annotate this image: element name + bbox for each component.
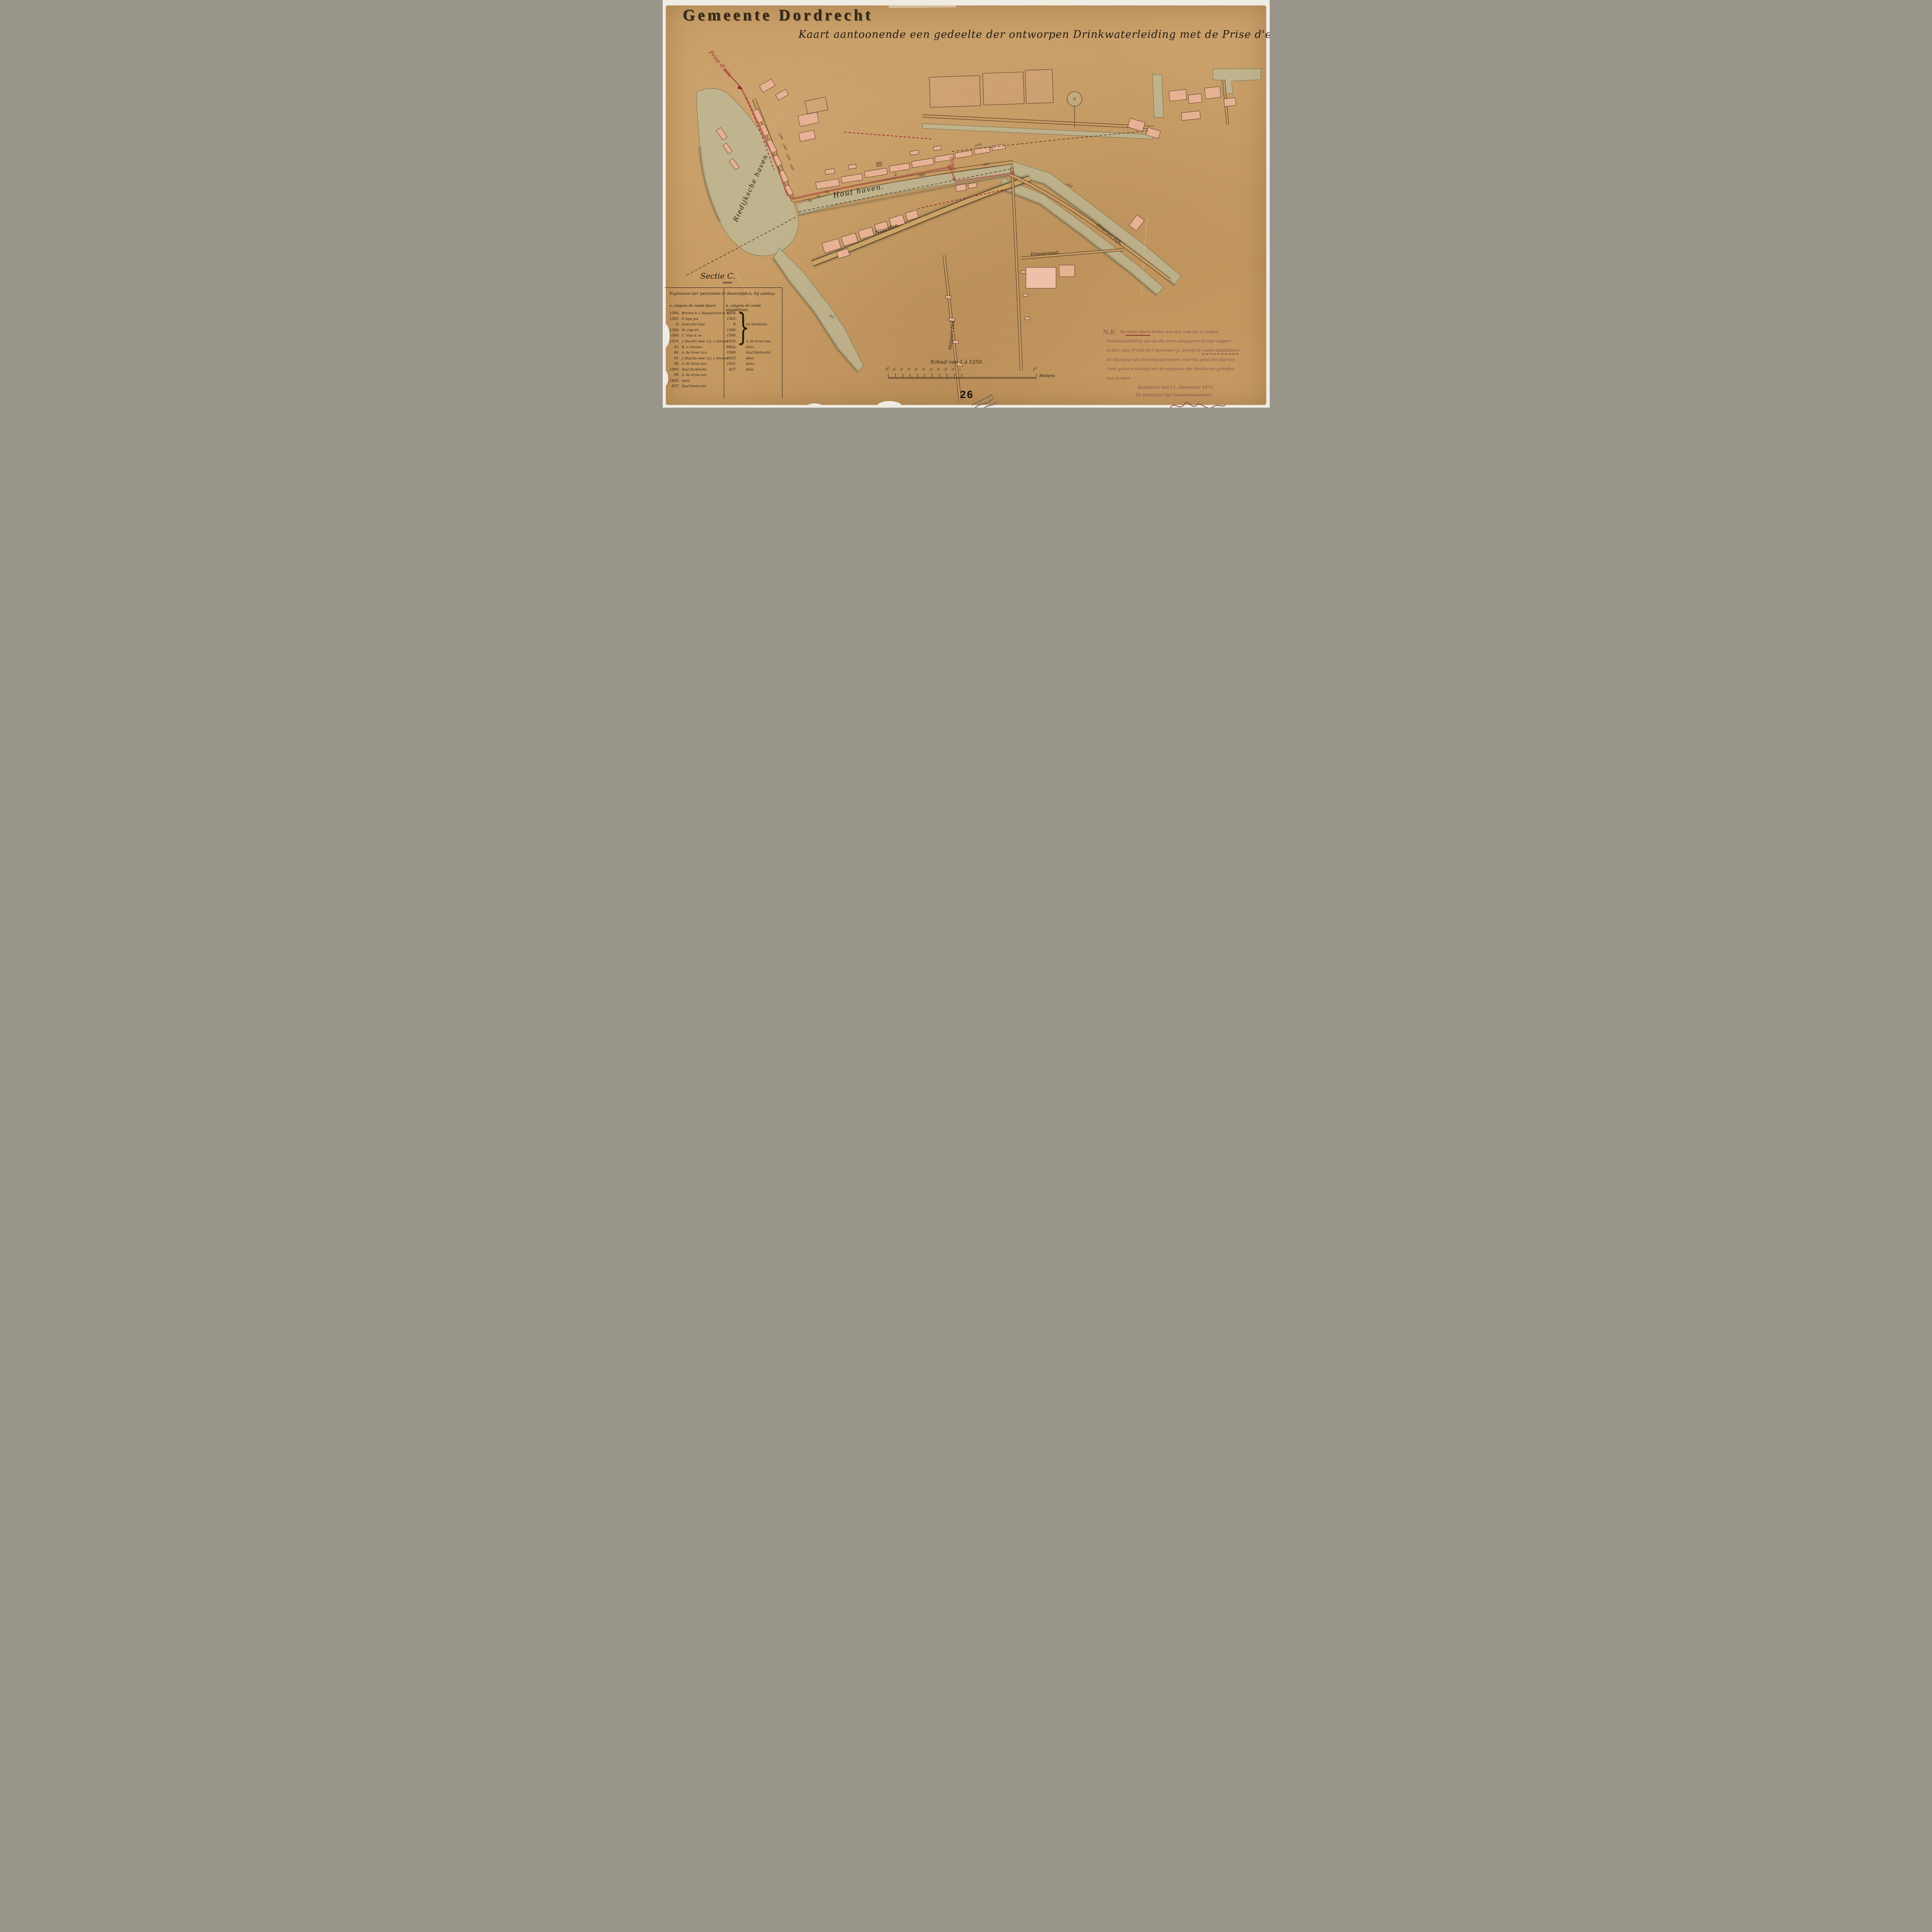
nb-line: De roode lijnen duiden aan den loop der … [1120,330,1218,334]
section-title-underline [723,282,732,283]
owner-name: Boonen & v. Hoogstraten & zn [682,311,730,315]
dashed-lines-underline [1202,354,1238,354]
scale-tick-label: 0 [958,368,961,372]
owner-name: M. Gips Pz. [682,328,700,332]
red-lines-underline [1126,335,1150,336]
parcel-num: 1633. [726,357,737,361]
map-sheet-scan: Gemeente Dordrecht Kaart aantoonende een… [663,0,1270,408]
scale-bar: Schaal van 1 à 1250. 100 90 80 70 60 50 … [885,358,1055,390]
parcel-num: 1509. [666,334,680,338]
tape-mark [888,2,956,8]
owner-name: Stad Dordrecht. [746,351,771,354]
owner-name: idem [682,379,690,383]
parcel-num: 1518. [726,340,737,344]
parcel-num: 837. [666,384,680,388]
owner-name: idem. [746,345,755,349]
parcel-num: 1465. [666,379,680,383]
nb-label: N.B. [1103,328,1117,336]
nb-line: trent geene schikking met de eigenaars d… [1107,367,1235,371]
parcel-num: 58bis. [726,345,737,349]
table-right-rule [782,287,782,398]
owner-name: Stad Dordrecht. [682,384,707,388]
scale-tick-label: 60 [914,367,918,372]
parcel-num: 1509. [726,334,737,338]
owner-name: idem [746,368,754,371]
parcel-number: 45 [893,172,897,177]
owner-name: idem. [746,362,755,366]
parcel-num: 8. [726,323,737,327]
owners-table: Sectie C. Eigenaren der perceelen te doo… [665,270,783,399]
owner-name: idem. [746,357,755,360]
owner-name: A. de Groot Azn. [682,362,708,366]
owner-name: C. Gips & zn [682,334,702,337]
owner-name: A. de Groot Azn. [682,351,708,354]
nb-line: te dier zake N°320 dd 3 November jl., te… [1107,349,1240,353]
parcel-number: 40 [876,162,882,166]
parcel-num: 1969. [726,351,737,355]
parcel-num: 1505. [726,317,737,321]
parcel-num: 1504. [666,311,680,315]
signoff: De Directeur der Gemeentewerken [1136,393,1211,398]
parcel-num: 1514. [666,340,680,344]
parcel-num: 1506. [666,328,680,332]
nb-line: kan worden. [1107,376,1131,381]
parcel-num: 1631. [726,362,737,366]
section-title: Sectie C. [701,271,735,281]
scale-tick-label: 100 [1032,366,1037,372]
scale-line [888,378,1036,379]
pencil-scribble [972,393,1003,408]
column-b-header: b. volgens de roode stippellijnen. [726,304,782,312]
parcel-number: 99. [951,177,956,181]
owner-name: J. Mauritz wed. G.J. v. Dorsser. [682,357,729,360]
column-a-header: a. volgens de roode lijnen. [670,304,723,308]
scale-unit: Meters. [1039,373,1056,378]
parcel-num: 45. [666,357,680,361]
owner-name: Stad Dordrecht. [682,368,707,371]
parcel-num: 99. [666,373,680,377]
parcel-num: 1504. [726,311,737,315]
owner-name: B. v. Limmen. [682,345,703,349]
tape-mark [1039,1,1066,5]
scale-line [888,377,1036,378]
scale-tick-label: 80 [899,367,904,372]
parcel-num: 1969. [666,368,680,372]
scale-tick-label: 70 [906,367,911,372]
page-title: Gemeente Dordrecht [683,7,873,23]
scale-label: Schaal van 1 à 1250. [930,359,983,365]
owner-name: A. de Groot Azn. [682,373,708,377]
scale-tick-label: 90 [892,367,896,372]
owner-name: zie hierneven. [746,323,768,326]
torn-edge [806,403,823,408]
parcel-num: 1505. [666,317,680,321]
parcel-num: 58. [666,362,680,366]
director-signature [1169,399,1227,408]
owner-name: erven Jan Gips. [682,323,706,326]
scale-tick-label: 40 [929,367,933,372]
parcel-num: 1506. [726,328,737,332]
parcel-num: 44. [666,351,680,355]
map-title: Kaart aantoonende een gedeelte der ontwo… [799,29,1270,40]
nb-line: de wijziging van dien loop aantoonen, vo… [1107,358,1235,362]
owner-name: A. de Groot Azn. [746,340,772,343]
nb-line: Drinkwaterleiding zoo als die werd aange… [1107,339,1231,344]
place-date: Dordrecht den 11. December 1873. [1138,385,1214,390]
parcel-num: 837. [726,368,737,372]
torn-edge [878,401,901,408]
scale-tick-label: 20 [943,367,948,372]
owner-name: J. Mauritz wed. G.J. v. Dorsser [682,340,729,343]
scale-tick-label: 100 [884,366,890,372]
parcel-num: 43. [666,345,680,349]
scale-tick-label: 10 [951,367,955,372]
table-header: Eigenaren der perceelen te doorsnijden, … [670,291,781,296]
scale-tick-label: 50 [921,367,926,372]
scale-tick-label: 30 [936,367,940,372]
parcel-num: 8. [666,323,680,327]
owner-name: P. Gips Jzn. [682,317,699,321]
